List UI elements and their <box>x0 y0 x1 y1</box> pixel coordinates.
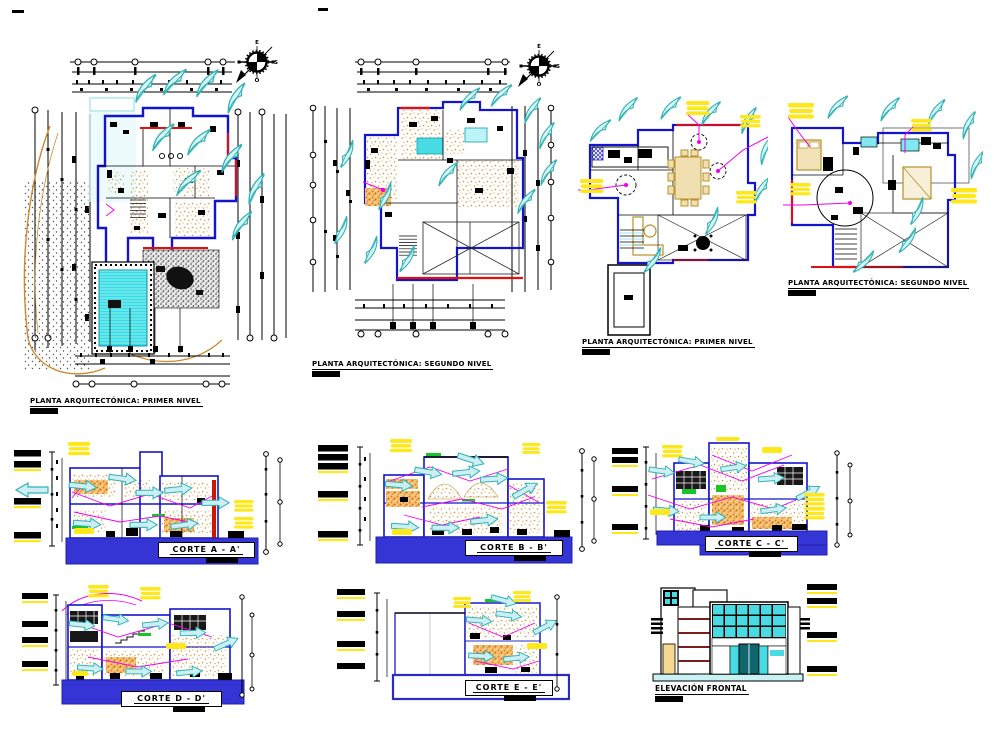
airflow-arrow-icon <box>16 483 48 497</box>
section-body <box>68 605 240 680</box>
bath-fixtures <box>159 153 182 158</box>
patio-furniture <box>678 235 713 252</box>
front-elevation-panel <box>645 580 840 692</box>
plan3-title: PLANTA ARQUITECTÓNICA: PRIMER NIVEL <box>582 338 755 355</box>
section-body <box>384 450 544 537</box>
dimension-line-left <box>49 452 62 546</box>
bench <box>554 530 570 537</box>
north-compass-icon <box>518 44 560 88</box>
dimension-line-right <box>580 449 597 552</box>
dimension-strip-top <box>355 59 510 92</box>
scale-bar <box>514 556 546 561</box>
plan4-title-text: PLANTA ARQUITECTÓNICA: SEGUNDO NIVEL <box>788 279 969 289</box>
dimension-line-right <box>264 452 283 555</box>
plan-second-level-panel <box>305 40 605 355</box>
elevation-title: ELEVACIÓN FRONTAL <box>655 684 749 702</box>
plan-second-level-furnished-panel <box>783 95 983 280</box>
dimension-strip-left <box>310 105 352 292</box>
plan-first-level-panel <box>10 38 300 398</box>
elevation-building <box>651 588 810 681</box>
bench <box>792 524 807 530</box>
vegetation <box>326 85 563 272</box>
swimming-pool <box>92 262 154 354</box>
terrace-brace <box>861 213 948 267</box>
bench <box>228 531 244 538</box>
section-c-title-text: CORTE C - C' <box>715 539 788 549</box>
section-b-title: CORTE B - B' <box>465 540 563 556</box>
louvers-right <box>800 618 810 630</box>
level-markers-left <box>22 593 48 671</box>
highlight <box>68 442 90 455</box>
highlights-right <box>234 500 254 529</box>
stray-mark <box>318 8 328 11</box>
studio-curved-wall <box>817 170 873 226</box>
plan2-title: PLANTA ARQUITECTÓNICA: SEGUNDO NIVEL <box>312 360 493 377</box>
section-d-title: CORTE D - D' <box>121 691 222 707</box>
kitchen <box>592 147 668 167</box>
bench <box>218 673 232 680</box>
landscape-stipple <box>24 180 90 370</box>
stairs <box>620 230 644 248</box>
dimension-line-left <box>374 593 387 681</box>
stray-mark <box>12 10 24 13</box>
level-markers-left <box>612 448 638 534</box>
section-e-title-text: CORTE E - E' <box>473 683 545 693</box>
section-c-title: CORTE C - C' <box>705 536 798 552</box>
dimension-line-right <box>835 451 852 547</box>
plan1-title-text: PLANTA ARQUITECTÓNICA: PRIMER NIVEL <box>30 397 203 407</box>
scale-bar <box>173 707 205 712</box>
section-body <box>395 592 559 675</box>
dimension-line-left <box>643 447 656 539</box>
scale-bar <box>206 558 238 563</box>
scale-bar <box>788 290 816 296</box>
level-markers-right <box>807 584 837 676</box>
section-d-title-text: CORTE D - D' <box>134 694 209 704</box>
scale-bar <box>504 696 536 701</box>
dimension-line-right <box>240 595 254 697</box>
scale-bar <box>312 371 340 377</box>
scale-bar <box>749 552 781 557</box>
curtain-wall <box>712 604 786 638</box>
level-markers-left <box>318 445 348 541</box>
lower-facade <box>712 638 786 674</box>
level-markers-left <box>337 589 365 669</box>
elevation-title-text: ELEVACIÓN FRONTAL <box>655 684 749 695</box>
scale-bar <box>30 408 58 414</box>
dimension-strip-bottom <box>355 284 508 337</box>
lap-pool <box>608 265 650 335</box>
scale-bar <box>655 696 683 702</box>
scale-bar <box>582 349 610 355</box>
plan2-title-text: PLANTA ARQUITECTÓNICA: SEGUNDO NIVEL <box>312 360 493 370</box>
dining-set <box>668 150 709 206</box>
plan1-title: PLANTA ARQUITECTÓNICA: PRIMER NIVEL <box>30 397 203 414</box>
section-a-panel <box>12 438 302 573</box>
bedroom-right <box>888 167 931 199</box>
bathroom-fixtures <box>853 137 941 155</box>
stairs <box>835 229 857 259</box>
section-b-title-text: CORTE B - B' <box>477 543 551 553</box>
drawing-sheet: E S O <box>0 0 1000 751</box>
section-body <box>69 452 230 538</box>
plan-first-level-furnished-panel <box>578 95 768 337</box>
plan3-title-text: PLANTA ARQUITECTÓNICA: PRIMER NIVEL <box>582 338 755 348</box>
highlights-top <box>88 585 161 599</box>
dimension-line-left <box>357 447 370 545</box>
plan4-title: PLANTA ARQUITECTÓNICA: SEGUNDO NIVEL <box>788 279 969 296</box>
section-e-title: CORTE E - E' <box>465 680 553 696</box>
north-compass-icon <box>236 40 278 84</box>
bedroom-left <box>797 140 833 171</box>
column-tan <box>663 644 675 674</box>
section-a-title: CORTE A - A' <box>158 542 255 558</box>
section-a-title-text: CORTE A - A' <box>170 545 244 555</box>
